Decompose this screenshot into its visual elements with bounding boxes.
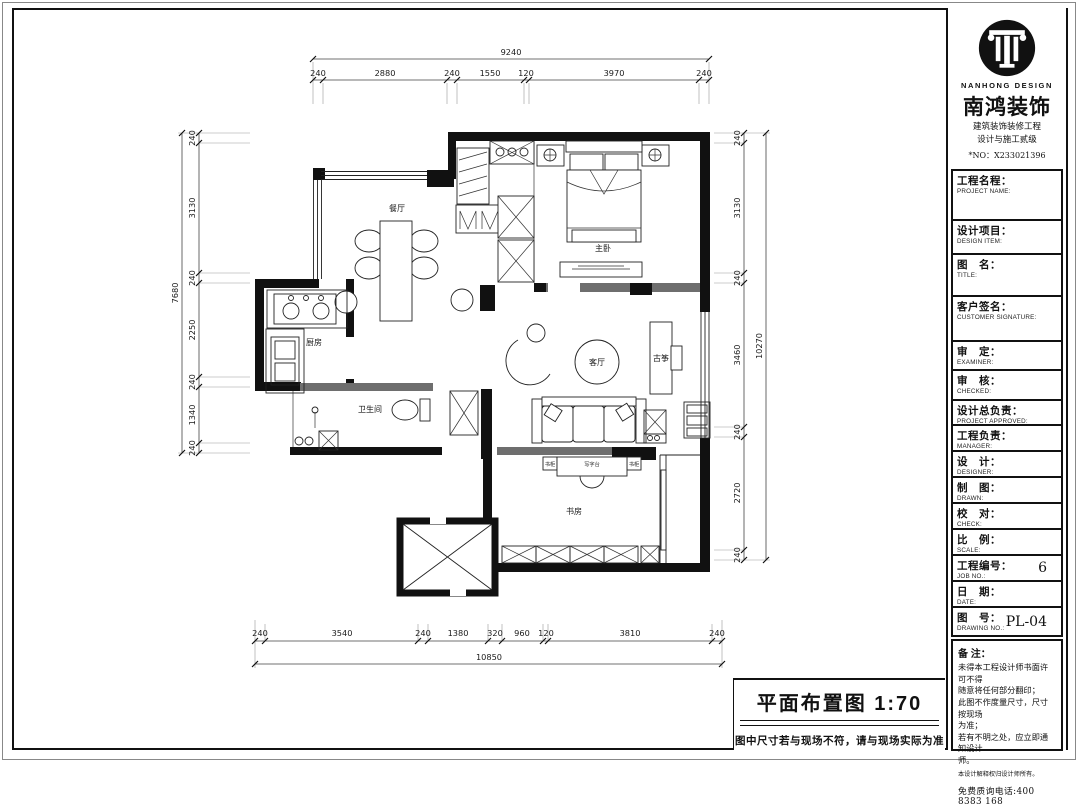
remarks-copyright: 本设计解释权归设计师所有。 — [958, 769, 1056, 778]
field-examiner: 审 定： EXAMINER: — [953, 342, 1061, 371]
title-block: NANHONG DESIGN 南鸿装饰 建筑装饰装修工程 设计与施工贰级 *NO… — [946, 8, 1066, 750]
elevator-shaft — [400, 516, 495, 596]
label-bookcase-right: 书柜 — [629, 460, 639, 468]
svg-text:240: 240 — [732, 130, 742, 146]
svg-text:240: 240 — [732, 270, 742, 286]
svg-text:1550: 1550 — [480, 68, 501, 78]
company-license-no: *NO：X233021396 — [948, 150, 1066, 161]
svg-text:240: 240 — [252, 628, 268, 638]
field-scale: 比 例： SCALE: — [953, 530, 1061, 556]
living-furniture — [506, 322, 710, 443]
dimension-top: 9240 240 2880 240 1550 120 3970 240 — [310, 47, 712, 104]
label-guzheng: 古筝 — [653, 353, 669, 363]
field-designer: 设 计： DESIGNER: — [953, 452, 1061, 478]
dim-left-total: 7680 — [170, 283, 180, 304]
label-bathroom: 卫生间 — [358, 404, 382, 414]
label-bookcase-left: 书柜 — [545, 460, 555, 468]
company-logo — [977, 18, 1037, 78]
label-kitchen: 厨房 — [306, 337, 322, 347]
plan-note: 图中尺寸若与现场不符，请与现场实际为准 — [734, 733, 945, 748]
field-project-name: 工程名程： PROJECT NAME: — [953, 171, 1061, 221]
label-master-bedroom: 主卧 — [595, 243, 611, 253]
entry-cabinets — [456, 141, 534, 282]
dimension-right: 240 3130 240 3460 240 2720 240 10270 — [714, 130, 770, 563]
plan-caption: 平面布置图 1:70 图中尺寸若与现场不符，请与现场实际为准 — [733, 678, 945, 750]
svg-text:320: 320 — [487, 628, 503, 638]
field-project-approved: 设计总负责： PROJECT APPROVED: — [953, 401, 1061, 426]
dim-bottom-total: 10850 — [476, 652, 502, 662]
label-dining: 餐厅 — [389, 204, 405, 213]
svg-text:240: 240 — [187, 270, 197, 286]
company-name-en: NANHONG DESIGN — [948, 81, 1066, 90]
svg-text:3130: 3130 — [187, 198, 197, 219]
drawing-no-value: PL-04 — [1006, 614, 1047, 630]
svg-text:240: 240 — [732, 424, 742, 440]
svg-text:240: 240 — [415, 628, 431, 638]
svg-text:240: 240 — [187, 374, 197, 390]
field-title: 图 名： TITLE: — [953, 255, 1061, 297]
svg-text:2720: 2720 — [732, 483, 742, 504]
company-line1: 建筑装饰装修工程 — [948, 121, 1066, 134]
dimension-bottom: 240 3540 240 1380 320 960 120 3810 240 1… — [252, 620, 725, 668]
svg-text:3810: 3810 — [620, 628, 641, 638]
dimension-left: 240 3130 240 2250 240 1340 240 7680 — [170, 130, 250, 456]
svg-text:240: 240 — [696, 68, 712, 78]
field-check: 校 对： CHECK: — [953, 504, 1061, 530]
field-checked: 审 核： CHECKED: — [953, 371, 1061, 401]
company-header: NANHONG DESIGN 南鸿装饰 建筑装饰装修工程 设计与施工贰级 *NO… — [948, 8, 1066, 169]
floor-plan: 9240 240 2880 240 1550 120 3970 240 240 … — [0, 0, 945, 764]
remarks-box: 备 注： 未得本工程设计师书面许可不得 随意将任何部分翻印； 此图不作度量尺寸，… — [951, 639, 1063, 751]
bathroom-furniture — [295, 391, 478, 450]
dim-right-total: 10270 — [754, 333, 764, 359]
svg-text:2880: 2880 — [375, 68, 396, 78]
svg-text:3540: 3540 — [332, 628, 353, 638]
svg-text:3970: 3970 — [604, 68, 625, 78]
job-no-value: 6 — [1038, 560, 1047, 576]
title-block-fields: 工程名程： PROJECT NAME: 设计项目： DESIGN ITEM: 图… — [951, 169, 1063, 637]
master-bedroom-furniture — [537, 141, 669, 277]
label-study: 书房 — [566, 506, 582, 516]
dining-furniture — [335, 221, 473, 321]
remarks-title: 备 注： — [958, 645, 1056, 660]
svg-text:2250: 2250 — [187, 320, 197, 341]
svg-text:1380: 1380 — [448, 628, 469, 638]
field-drawn: 制 图： DRAWN: — [953, 478, 1061, 504]
field-manager: 工程负责： MANAGER: — [953, 426, 1061, 452]
svg-text:240: 240 — [310, 68, 326, 78]
svg-text:3130: 3130 — [732, 198, 742, 219]
drawing-sheet: { "sheet": { "plan_title": "平面布置图 1:70",… — [0, 0, 1080, 764]
svg-text:960: 960 — [514, 628, 530, 638]
dim-top-total: 9240 — [501, 47, 522, 57]
svg-text:240: 240 — [444, 68, 460, 78]
svg-text:240: 240 — [732, 547, 742, 563]
svg-text:240: 240 — [187, 440, 197, 456]
label-desk: 写字台 — [584, 460, 600, 468]
svg-text:120: 120 — [538, 628, 554, 638]
hotline: 免费质询电话:400 8383 168 — [958, 784, 1056, 807]
field-job-no: 工程编号： JOB NO.: 6 — [953, 556, 1061, 582]
caption-double-rule — [740, 720, 939, 726]
company-line2: 设计与施工贰级 — [948, 134, 1066, 147]
field-date: 日 期： DATE: — [953, 582, 1061, 608]
company-name-cn: 南鸿装饰 — [948, 91, 1066, 121]
svg-text:120: 120 — [518, 68, 534, 78]
label-living: 客厅 — [589, 357, 605, 367]
field-design-item: 设计项目： DESIGN ITEM: — [953, 221, 1061, 255]
field-customer-signature: 客户签名： CUSTOMER SIGNATURE: — [953, 297, 1061, 342]
svg-text:240: 240 — [187, 130, 197, 146]
field-drawing-no: 图 号： DRAWING NO.: PL-04 — [953, 608, 1061, 635]
svg-text:240: 240 — [709, 628, 725, 638]
plan-title: 平面布置图 1:70 — [734, 680, 945, 720]
svg-text:1340: 1340 — [187, 405, 197, 426]
svg-text:3460: 3460 — [732, 345, 742, 366]
